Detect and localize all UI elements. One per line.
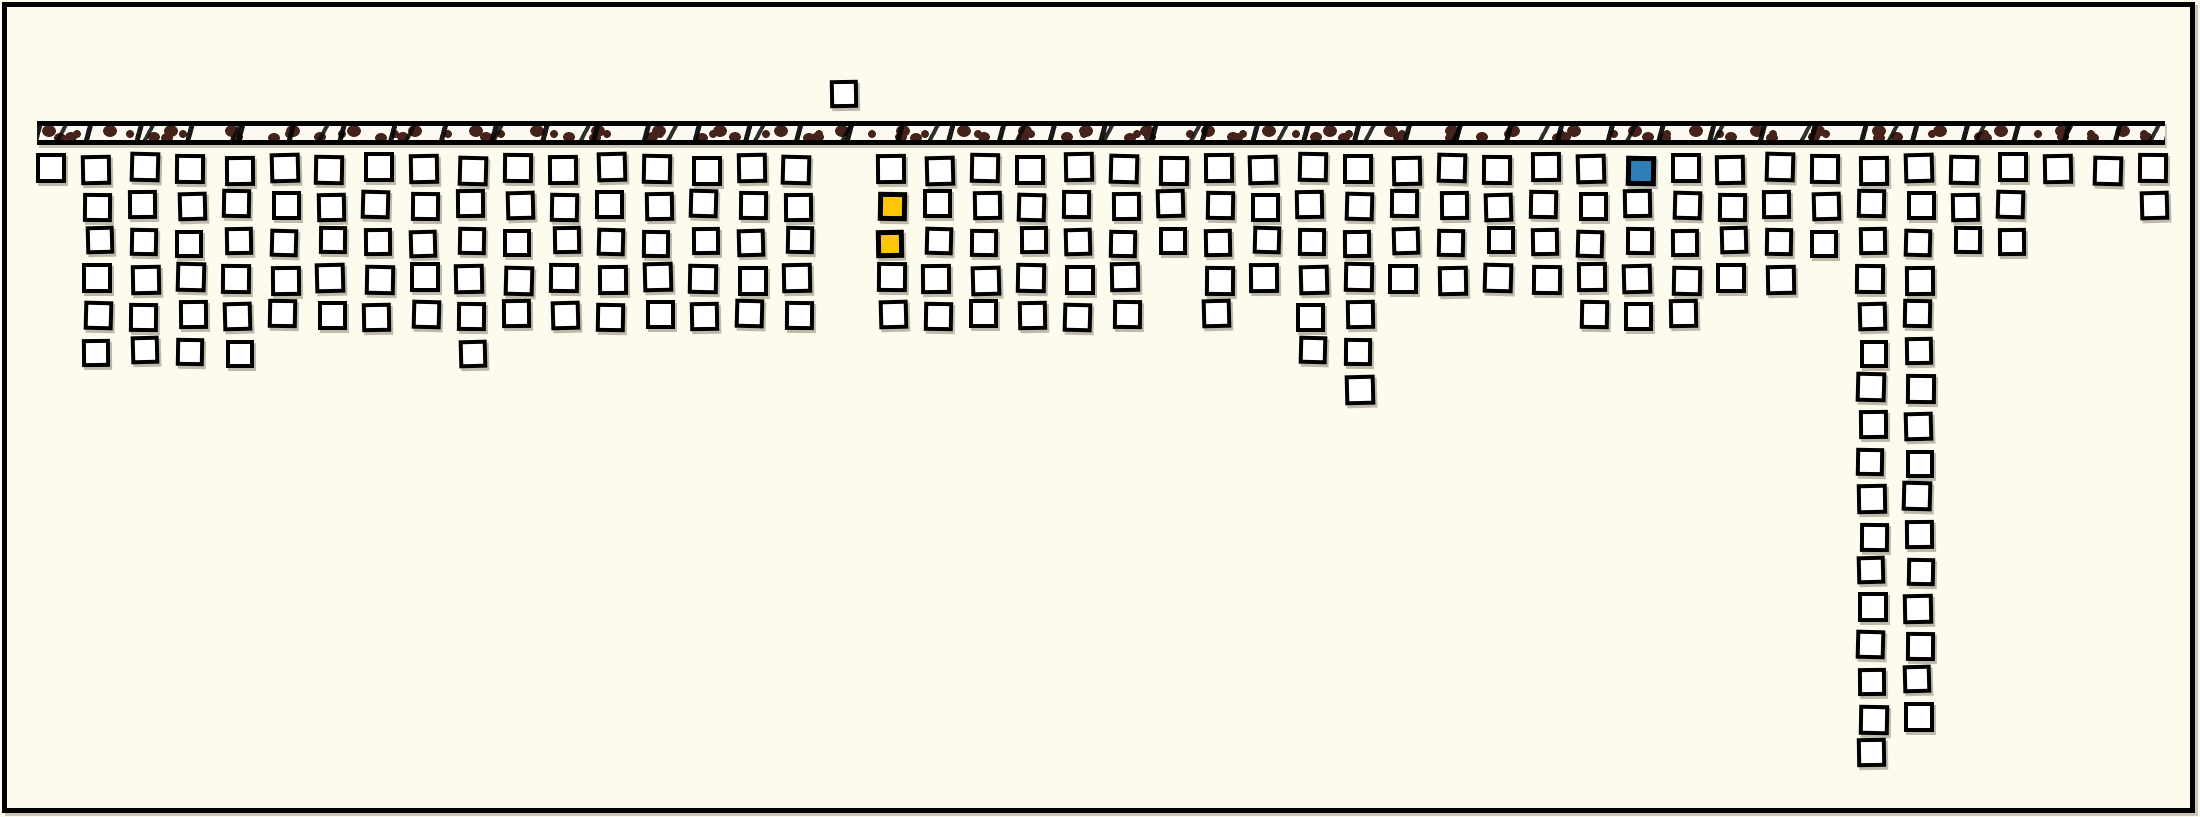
unit-square xyxy=(222,189,252,219)
unit-square xyxy=(642,154,673,185)
unit-square xyxy=(2093,156,2124,187)
unit-square xyxy=(1576,154,1607,185)
unit-square xyxy=(1812,192,1842,222)
unit-square xyxy=(925,156,956,187)
unit-square xyxy=(1996,190,2026,220)
unit-square xyxy=(504,266,535,297)
unit-square xyxy=(1343,154,1373,184)
unit-square xyxy=(1858,592,1888,622)
unit-square xyxy=(1671,153,1701,183)
unit-square xyxy=(737,153,768,184)
unit-square xyxy=(739,191,768,220)
unit-square xyxy=(409,154,440,185)
unit-square xyxy=(1063,303,1093,333)
unit-square xyxy=(1715,155,1746,186)
unit-square xyxy=(409,230,438,259)
unit-square xyxy=(2043,154,2074,185)
unit-square xyxy=(781,155,812,186)
unit-square xyxy=(1065,265,1095,295)
unit-square xyxy=(270,229,299,258)
ground-surface-bar xyxy=(37,121,2165,145)
unit-square xyxy=(971,266,1002,297)
unit-square xyxy=(879,300,909,330)
unit-square xyxy=(1110,262,1141,293)
unit-square xyxy=(221,264,251,294)
unit-square xyxy=(1904,412,1934,442)
unit-square xyxy=(1907,191,1936,220)
unit-square xyxy=(598,265,628,295)
unit-square xyxy=(1905,337,1933,365)
unit-square xyxy=(1623,189,1653,219)
unit-square xyxy=(642,230,670,258)
unit-square xyxy=(688,264,719,295)
unit-square xyxy=(317,193,347,223)
unit-square xyxy=(782,263,813,294)
unit-square xyxy=(1998,228,2026,256)
unit-square xyxy=(131,265,162,296)
unit-square xyxy=(459,340,488,369)
unit-square xyxy=(1766,265,1797,296)
unit-square xyxy=(458,227,486,255)
unit-square xyxy=(225,227,253,255)
unit-square xyxy=(1156,189,1186,219)
unit-square xyxy=(84,301,114,331)
unit-square xyxy=(1159,227,1187,255)
unit-square xyxy=(1669,299,1699,329)
unit-square xyxy=(1531,228,1559,256)
unit-square xyxy=(506,191,536,221)
unit-square xyxy=(1857,189,1887,219)
unit-square xyxy=(2140,191,2170,221)
unit-square xyxy=(1907,558,1935,586)
unit-square xyxy=(456,189,485,218)
unit-square xyxy=(129,303,158,332)
unit-square xyxy=(1343,230,1371,258)
unit-square xyxy=(1810,230,1838,258)
unit-square xyxy=(1857,484,1888,515)
unit-square xyxy=(1720,226,1749,255)
unit-square xyxy=(1109,154,1140,185)
unit-square xyxy=(597,152,628,183)
unit-square xyxy=(1904,229,1933,258)
unit-square xyxy=(1860,523,1889,552)
unit-square xyxy=(86,226,115,255)
unit-square xyxy=(1390,189,1419,218)
unit-square xyxy=(970,229,998,257)
unit-square xyxy=(503,153,533,183)
unit-square xyxy=(503,229,531,257)
unit-square xyxy=(364,228,392,256)
unit-square xyxy=(454,264,485,295)
unit-square xyxy=(175,154,205,184)
unit-square xyxy=(178,192,208,222)
unit-square xyxy=(596,303,626,333)
unit-square xyxy=(81,155,112,186)
blue-unit-square xyxy=(1626,156,1657,187)
unit-square xyxy=(1949,155,1980,186)
unit-square xyxy=(1951,193,1981,223)
unit-square xyxy=(1483,263,1514,294)
unit-square xyxy=(1859,227,1887,255)
unit-square xyxy=(1113,300,1142,329)
unit-square xyxy=(176,338,204,366)
unit-square xyxy=(735,299,765,329)
unit-square xyxy=(365,265,396,296)
unit-square xyxy=(1345,192,1375,222)
unit-square xyxy=(1903,299,1933,329)
unit-square xyxy=(1392,156,1423,187)
unit-square xyxy=(1671,229,1699,257)
unit-square xyxy=(643,262,674,293)
unit-square xyxy=(1531,152,1561,182)
unit-square xyxy=(1762,190,1791,219)
unit-square xyxy=(1622,264,1653,295)
unit-square xyxy=(1859,410,1888,439)
unit-square xyxy=(1205,266,1235,296)
unit-square xyxy=(1626,227,1654,255)
unit-square xyxy=(410,262,440,292)
unit-square xyxy=(924,302,954,332)
unit-square xyxy=(877,262,907,292)
unit-square xyxy=(411,192,440,221)
unit-square xyxy=(970,153,1001,184)
unit-square xyxy=(1345,375,1376,406)
unit-square xyxy=(362,303,392,333)
unit-square xyxy=(502,299,531,328)
unit-square xyxy=(1579,192,1608,221)
unit-square xyxy=(225,156,255,186)
unit-square xyxy=(83,193,112,222)
unit-square xyxy=(1906,450,1934,478)
unit-square xyxy=(1249,263,1279,293)
unit-square xyxy=(1765,228,1793,256)
unit-square xyxy=(692,227,720,255)
unit-square xyxy=(1344,338,1372,366)
unit-square xyxy=(1856,448,1884,476)
unit-square xyxy=(692,156,722,186)
unit-square xyxy=(175,230,203,258)
unit-square xyxy=(1716,263,1746,293)
unit-square xyxy=(1906,374,1936,404)
unit-square xyxy=(1905,520,1934,549)
unit-square xyxy=(921,264,951,294)
unit-square xyxy=(553,226,581,254)
unit-square xyxy=(923,189,952,218)
unit-square xyxy=(1299,265,1330,296)
unit-square xyxy=(1810,154,1840,184)
unit-square xyxy=(1159,156,1189,186)
unit-square xyxy=(737,229,766,258)
unit-square xyxy=(1903,594,1934,625)
unit-square xyxy=(550,193,580,223)
unit-square xyxy=(457,302,486,331)
unit-square xyxy=(1856,372,1887,403)
unit-square xyxy=(128,190,157,219)
unit-square xyxy=(597,228,626,257)
unit-square xyxy=(271,266,301,296)
unit-square xyxy=(1902,481,1933,512)
unit-square xyxy=(1062,190,1091,219)
unit-square xyxy=(1580,300,1610,330)
unit-square xyxy=(1296,303,1325,332)
unit-square xyxy=(786,226,814,254)
unit-square xyxy=(784,193,813,222)
unit-square xyxy=(361,190,391,220)
unit-square xyxy=(1015,155,1045,185)
unit-square xyxy=(973,191,1003,221)
unit-square xyxy=(1064,152,1095,183)
unit-square xyxy=(595,190,624,219)
unit-square xyxy=(1299,336,1328,365)
unit-square xyxy=(364,152,394,182)
unit-square xyxy=(1392,227,1421,256)
unit-square xyxy=(1718,193,1747,222)
unit-square xyxy=(1016,263,1047,294)
unit-square xyxy=(1905,266,1935,296)
unit-square xyxy=(318,301,347,330)
unit-square xyxy=(1388,264,1418,294)
unit-square xyxy=(1248,155,1279,186)
unit-square xyxy=(1017,193,1047,223)
unit-square xyxy=(1206,191,1236,221)
unit-square xyxy=(226,340,254,368)
unit-square xyxy=(1112,192,1141,221)
unit-square xyxy=(319,226,347,254)
above-ground-square xyxy=(830,80,858,108)
unit-square xyxy=(1251,193,1280,222)
unit-square xyxy=(1298,152,1329,183)
unit-square xyxy=(131,336,160,365)
unit-square xyxy=(82,263,112,293)
unit-square xyxy=(1487,226,1515,254)
unit-square xyxy=(1673,191,1703,221)
unit-square xyxy=(179,300,208,329)
unit-square xyxy=(223,302,253,332)
yellow-unit-square xyxy=(876,230,904,258)
unit-square xyxy=(1856,630,1886,660)
unit-square xyxy=(1576,230,1605,259)
unit-square xyxy=(1018,301,1048,331)
unit-square xyxy=(1344,262,1375,293)
unit-square xyxy=(1765,152,1796,183)
unit-square xyxy=(549,263,579,293)
comic-panel xyxy=(0,0,2200,817)
unit-square xyxy=(412,300,442,330)
unit-square xyxy=(130,228,158,256)
unit-square xyxy=(1857,556,1886,585)
unit-square xyxy=(1672,266,1703,297)
unit-square xyxy=(1202,299,1232,329)
unit-square xyxy=(1577,262,1607,292)
yellow-unit-square xyxy=(878,192,908,222)
unit-square xyxy=(1860,340,1888,368)
unit-square xyxy=(785,301,814,330)
unit-square xyxy=(1064,228,1093,257)
unit-square xyxy=(176,262,207,293)
unit-square xyxy=(1904,702,1934,732)
unit-square xyxy=(270,153,301,184)
unit-square xyxy=(1204,153,1234,183)
unit-square xyxy=(1346,300,1376,330)
unit-square xyxy=(645,192,675,222)
unit-square xyxy=(690,302,720,332)
unit-square xyxy=(1109,230,1137,258)
unit-square xyxy=(272,191,301,220)
unit-square xyxy=(1020,226,1048,254)
unit-square xyxy=(1298,228,1326,256)
unit-square xyxy=(36,153,66,183)
unit-square xyxy=(969,299,998,328)
unit-square xyxy=(314,155,345,186)
unit-square xyxy=(646,300,675,329)
unit-square xyxy=(876,154,906,184)
unit-square xyxy=(458,156,489,187)
unit-square xyxy=(1998,152,2028,182)
unit-square xyxy=(1906,632,1935,661)
unit-square xyxy=(82,339,110,367)
unit-square xyxy=(2138,153,2168,183)
unit-square xyxy=(551,301,581,331)
unit-square xyxy=(1295,190,1325,220)
unit-square xyxy=(1857,738,1887,768)
unit-square xyxy=(1482,155,1512,185)
unit-square xyxy=(1204,229,1232,257)
unit-square xyxy=(268,299,298,329)
unit-square xyxy=(1253,226,1282,255)
unit-square xyxy=(1858,302,1888,332)
unit-square xyxy=(548,155,578,185)
unit-square xyxy=(1904,153,1935,184)
unit-square xyxy=(1437,229,1465,257)
unit-square xyxy=(1529,190,1559,220)
unit-square xyxy=(1903,665,1932,694)
unit-square xyxy=(1859,705,1890,736)
unit-square xyxy=(1438,266,1469,297)
unit-square xyxy=(925,227,954,256)
unit-square xyxy=(1484,193,1514,223)
unit-square xyxy=(315,263,346,294)
unit-square xyxy=(1954,226,1982,254)
unit-square xyxy=(1624,302,1653,331)
unit-square xyxy=(1855,264,1885,294)
unit-square xyxy=(1440,191,1469,220)
unit-square xyxy=(689,189,719,219)
unit-square xyxy=(738,266,768,296)
unit-square xyxy=(130,152,161,183)
unit-square xyxy=(1532,265,1562,295)
unit-square xyxy=(1437,153,1468,184)
unit-square xyxy=(1859,156,1889,186)
unit-square xyxy=(1858,668,1886,696)
